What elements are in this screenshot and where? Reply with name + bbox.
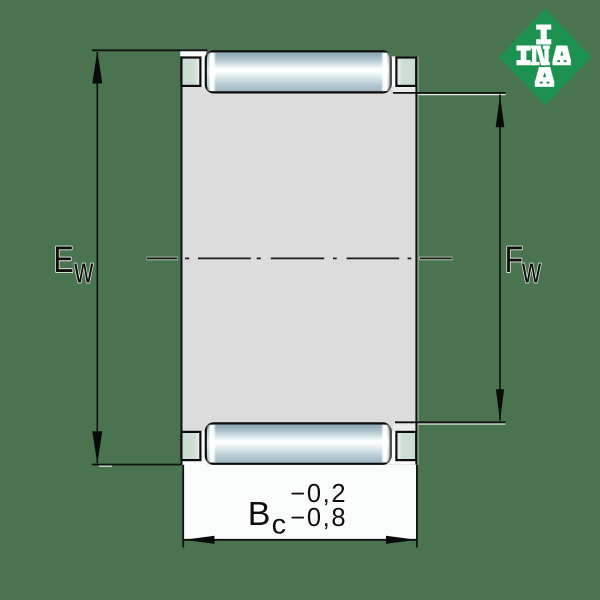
svg-text:F: F bbox=[505, 239, 524, 281]
svg-text:c: c bbox=[272, 508, 286, 539]
svg-text:E: E bbox=[54, 239, 74, 281]
svg-text:B: B bbox=[248, 496, 271, 532]
svg-text:−0,8: −0,8 bbox=[290, 504, 347, 532]
svg-text:w: w bbox=[521, 249, 541, 290]
svg-text:w: w bbox=[73, 249, 93, 290]
